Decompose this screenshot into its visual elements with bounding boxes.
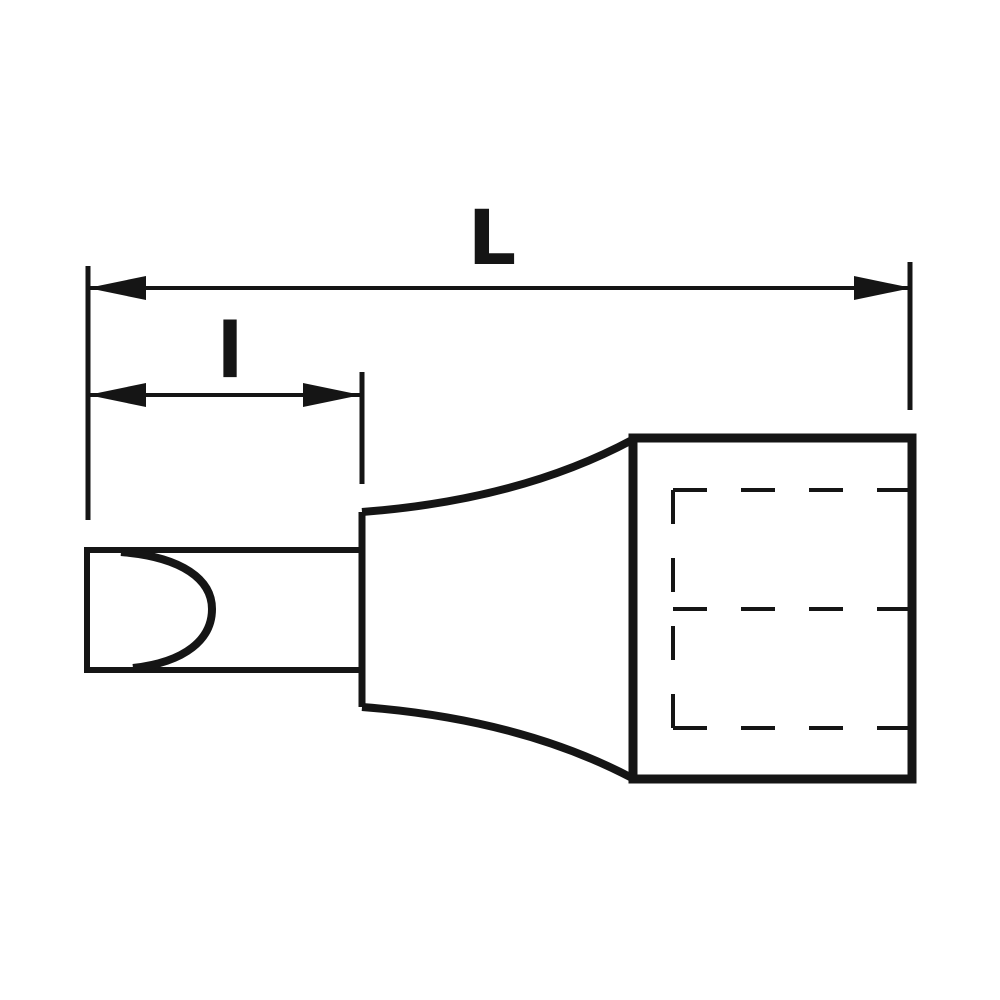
taper-top-curve: [362, 440, 632, 512]
arrowhead-tip-left: [88, 383, 146, 407]
taper-bottom-curve: [362, 707, 632, 778]
dimension-annotations: L l: [88, 193, 912, 407]
arrowhead-overall-left: [88, 276, 146, 300]
socket-bit-technical-drawing: L l: [0, 0, 1000, 1000]
arrowhead-overall-right: [854, 276, 912, 300]
line-work: L l: [87, 193, 912, 779]
blade-slot-curve: [121, 552, 212, 668]
hidden-drive-square: [673, 490, 911, 728]
drawing-canvas: L l: [0, 0, 1000, 1000]
label-tip-length: l: [217, 306, 243, 395]
label-overall-length: L: [468, 193, 516, 282]
blade-shank-outline: [87, 550, 362, 670]
arrowhead-tip-right: [303, 383, 361, 407]
